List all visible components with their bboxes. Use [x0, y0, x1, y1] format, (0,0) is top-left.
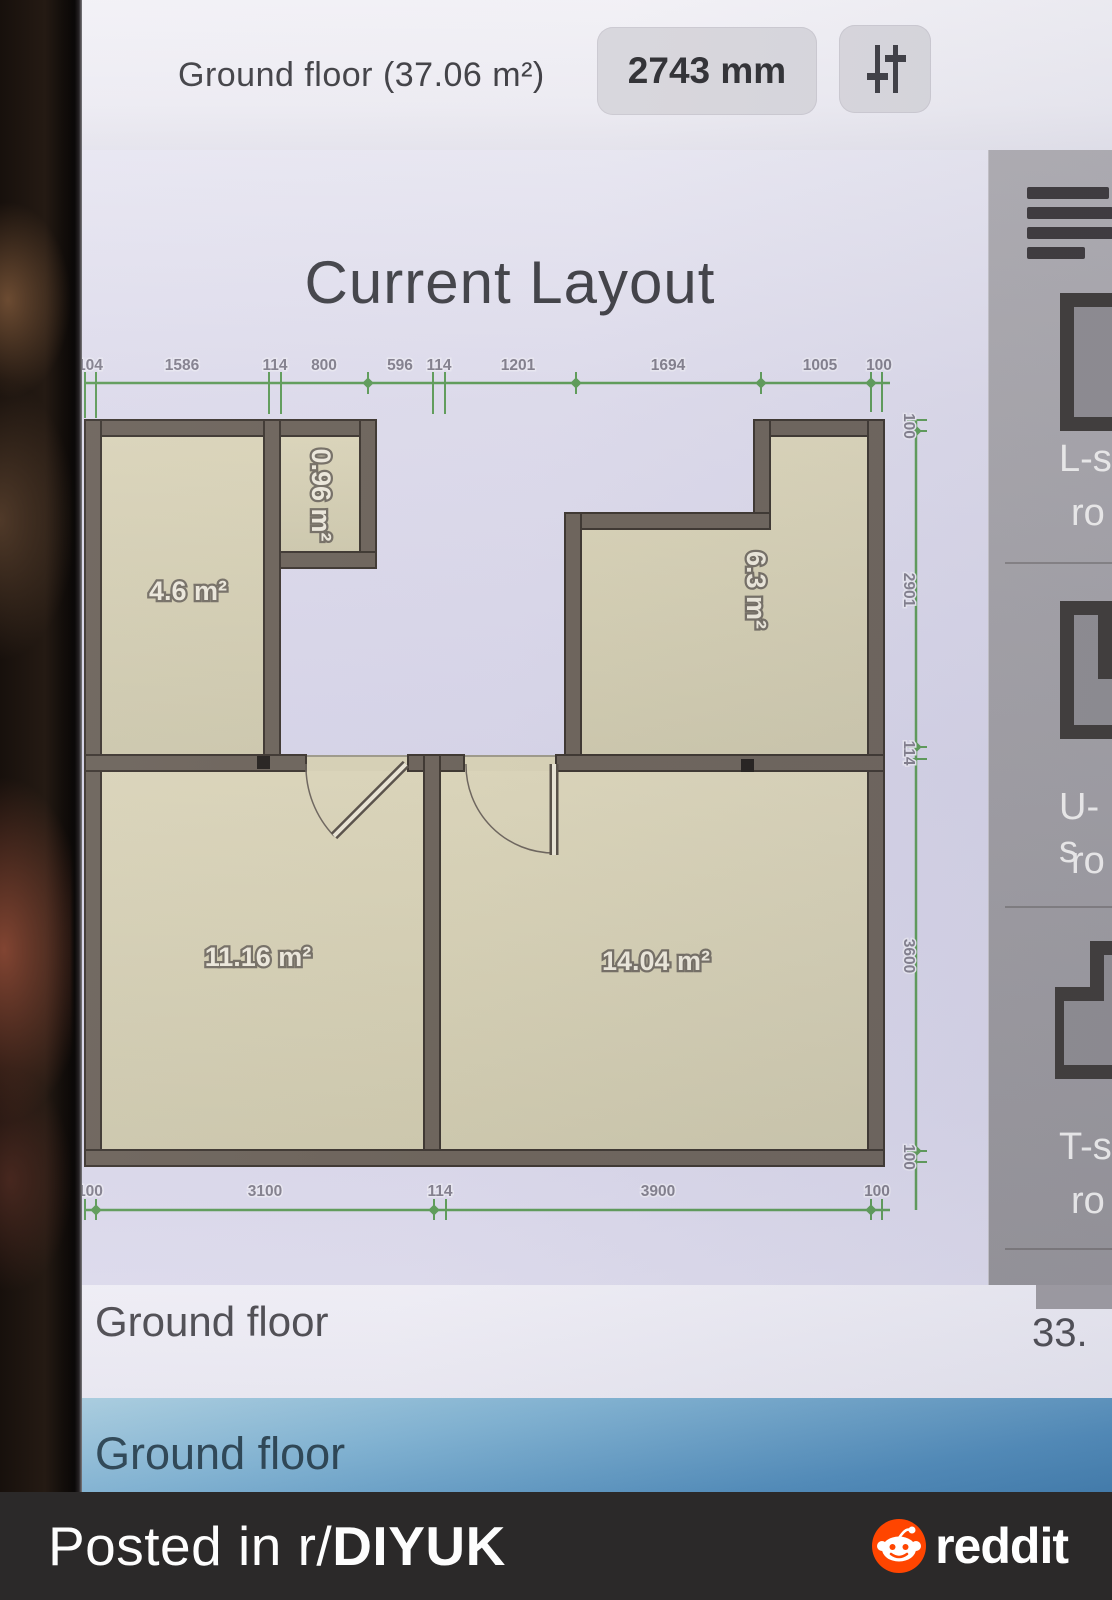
- svg-text:1586: 1586: [165, 357, 200, 374]
- settings-button[interactable]: [839, 25, 931, 113]
- svg-text:0.96 m²: 0.96 m²: [306, 448, 336, 541]
- posted-in-text: Posted in r/DIYUK: [48, 1514, 506, 1578]
- u-shaped-room-icon: [1055, 598, 1112, 743]
- posted-prefix: Posted in r/: [48, 1515, 332, 1577]
- door-opening-1: [306, 755, 408, 771]
- svg-text:3900: 3900: [641, 1183, 675, 1200]
- wall-height-button[interactable]: 2743 mm: [597, 27, 817, 115]
- t-shaped-room-icon: [1055, 938, 1112, 1083]
- svg-text:596: 596: [387, 357, 413, 374]
- divider: [1005, 562, 1112, 564]
- divider: [1005, 1248, 1112, 1250]
- menu-icon: [1027, 187, 1109, 199]
- floor-tab[interactable]: Ground floor: [78, 1398, 1112, 1492]
- shape-sidebar: L-s ro U-s ro T-s ro: [988, 150, 1112, 1285]
- room-6-3[interactable]: [581, 436, 868, 755]
- wall-handle[interactable]: [257, 756, 270, 769]
- svg-text:104: 104: [80, 357, 103, 374]
- dim-labels-top: 104 1586 114 800 596 114 1201 1694 1005 …: [80, 357, 892, 374]
- reddit-logo: reddit: [871, 1517, 1068, 1575]
- floor-tab-label: Ground floor: [95, 1428, 345, 1480]
- app-header: Ground floor (37.06 m²) 2743 mm: [78, 0, 1112, 151]
- svg-text:11.16 m²: 11.16 m²: [205, 942, 312, 972]
- reddit-snoo-icon: [871, 1518, 927, 1574]
- svg-text:100: 100: [80, 1183, 103, 1200]
- svg-text:2901: 2901: [900, 573, 917, 608]
- floor-row-area-value: 33.: [1032, 1311, 1088, 1356]
- svg-text:100: 100: [900, 413, 917, 439]
- wall-handle[interactable]: [741, 759, 754, 772]
- svg-text:1201: 1201: [501, 357, 536, 374]
- photo-of-floorplan-app: Ground floor (37.06 m²) 2743 mm Current …: [0, 0, 1112, 1600]
- sidebar-corner: [1036, 1285, 1112, 1309]
- svg-text:6.3 m²: 6.3 m²: [741, 551, 771, 629]
- svg-text:114: 114: [427, 1183, 452, 1200]
- svg-text:14.04 m²: 14.04 m²: [602, 946, 710, 976]
- svg-text:100: 100: [866, 357, 892, 374]
- page-title: Ground floor (37.06 m²): [178, 56, 545, 95]
- tune-icon: [862, 42, 908, 96]
- svg-text:4.6 m²: 4.6 m²: [149, 576, 227, 606]
- dim-labels-right: 100 2901 114 3600 100: [900, 413, 917, 1170]
- svg-text:100: 100: [864, 1183, 890, 1200]
- reddit-wordmark: reddit: [935, 1517, 1068, 1575]
- svg-text:3100: 3100: [248, 1183, 282, 1200]
- floor-list-row[interactable]: Ground floor 33.: [78, 1285, 1112, 1398]
- door-opening-2: [464, 755, 556, 771]
- l-shaped-room-icon: [1055, 290, 1112, 435]
- floor-row-label: Ground floor: [95, 1298, 328, 1346]
- svg-text:100: 100: [900, 1144, 917, 1170]
- bezel-edge: [70, 0, 82, 1492]
- plan-title: Current Layout: [80, 248, 940, 317]
- svg-text:114: 114: [900, 740, 917, 765]
- floor-plan[interactable]: 104 1586 114 800 596 114 1201 1694 1005 …: [80, 340, 940, 1220]
- svg-text:114: 114: [426, 357, 451, 374]
- svg-text:1005: 1005: [803, 357, 838, 374]
- dim-labels-bottom: 100 3100 114 3900 100: [80, 1183, 890, 1200]
- svg-text:1694: 1694: [651, 357, 686, 374]
- svg-text:114: 114: [262, 357, 287, 374]
- reddit-banner: Posted in r/DIYUK reddit: [0, 1492, 1112, 1600]
- divider: [1005, 906, 1112, 908]
- subreddit-name: DIYUK: [332, 1515, 506, 1577]
- svg-text:3600: 3600: [900, 939, 917, 973]
- svg-text:800: 800: [311, 357, 337, 374]
